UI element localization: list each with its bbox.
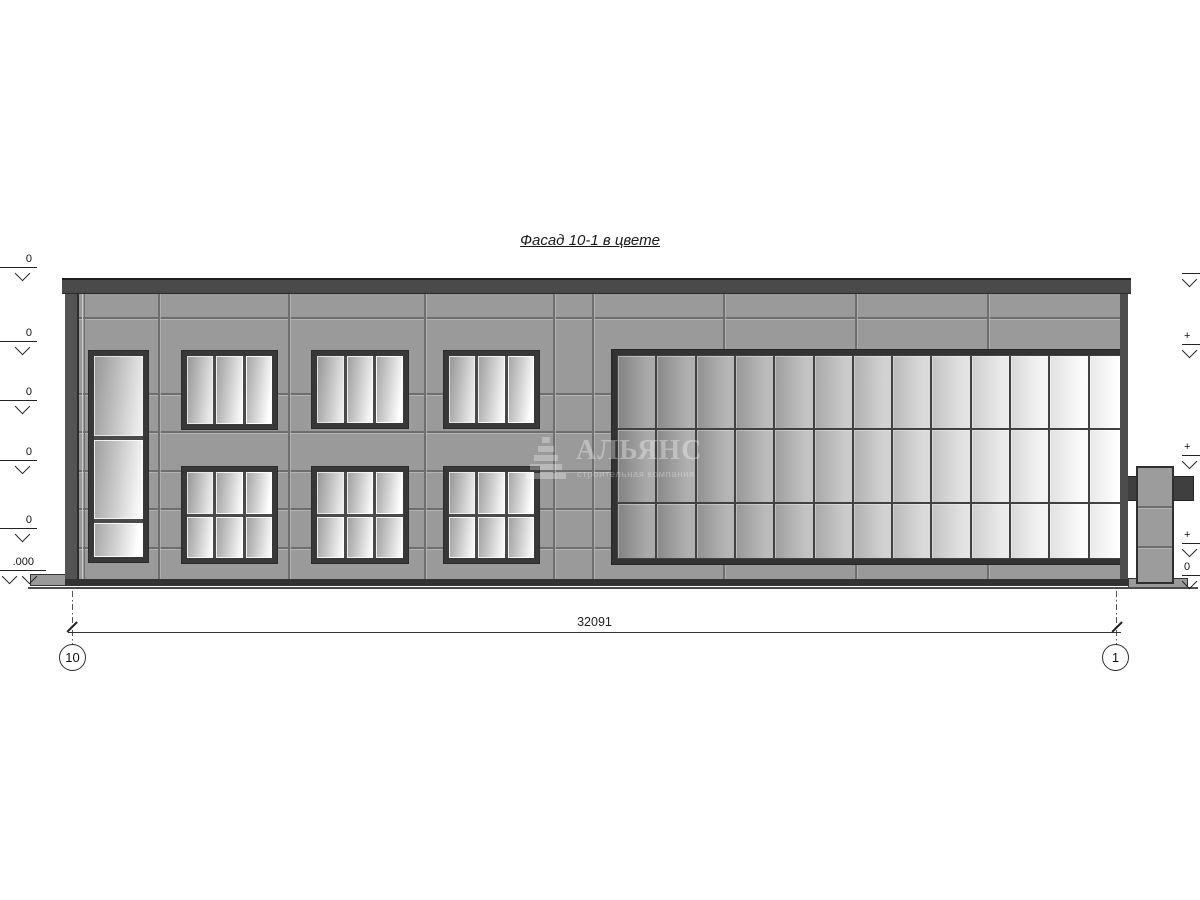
drawing-sheet: Фасад 10-1 в цвете [0, 0, 1200, 900]
glass-pane [508, 472, 534, 514]
glass-pane [187, 517, 213, 559]
grid-axis-circle-1: 1 [1102, 644, 1129, 671]
facade-left-joint [82, 290, 83, 586]
elevation-marker [1182, 259, 1200, 287]
glass-pane [376, 356, 403, 423]
curtain-wall-pane [814, 429, 853, 503]
curtain-wall-pane [696, 429, 735, 503]
curtain-wall-pane [931, 355, 970, 429]
grid-axis-circle-10: 10 [59, 644, 86, 671]
curtain-wall-pane [656, 429, 695, 503]
grid-axis-label: 1 [1112, 650, 1119, 665]
curtain-wall-pane [1049, 503, 1088, 559]
glass-pane [478, 472, 504, 514]
elevation-marker-label: + [1184, 330, 1190, 343]
elevation-marker: 0 [1182, 561, 1200, 589]
curtain-wall-pane [735, 355, 774, 429]
glass-pane [94, 356, 143, 436]
curtain-wall-pane [1010, 355, 1049, 429]
chimney [1136, 466, 1174, 584]
facade-right-edge [1120, 290, 1128, 586]
curtain-wall-pane [774, 355, 813, 429]
glass-pane [376, 472, 403, 514]
curtain-wall-pane [1010, 503, 1049, 559]
glass-pane [508, 517, 534, 559]
elevation-marker: + [1182, 441, 1200, 469]
window-lower-2 [312, 467, 408, 563]
curtain-wall-pane [853, 429, 892, 503]
curtain-wall-pane [735, 503, 774, 559]
glass-pane [246, 356, 272, 424]
dimension-line [68, 632, 1121, 633]
glass-pane [347, 356, 374, 423]
parapet-cap [62, 278, 1131, 293]
curtain-wall-pane [774, 503, 813, 559]
glass-pane [216, 517, 242, 559]
glass-pane [376, 517, 403, 559]
curtain-wall-pane [971, 503, 1010, 559]
facade-left-edge [65, 290, 79, 586]
curtain-wall-pane [774, 429, 813, 503]
curtain-wall-pane [853, 503, 892, 559]
elevation-marker-label: 0 [26, 327, 32, 340]
window-lower-1 [182, 467, 277, 563]
curtain-wall-pane [617, 355, 656, 429]
curtain-wall [612, 350, 1128, 564]
window-tall [89, 351, 148, 562]
elevation-marker-label: 0 [26, 446, 32, 459]
panel-joint-horizontal [79, 317, 1120, 319]
chimney-joint [1138, 546, 1172, 548]
elevation-marker-label: 0 [26, 253, 32, 266]
elevation-marker: 0 [0, 327, 37, 355]
curtain-wall-pane [1049, 429, 1088, 503]
elevation-marker-label: .000 [13, 556, 34, 569]
elevation-marker-label: 0 [26, 514, 32, 527]
window-upper-2 [312, 351, 408, 428]
glass-pane [246, 517, 272, 559]
curtain-wall-pane [892, 503, 931, 559]
elevation-marker: 0 [0, 514, 37, 542]
curtain-wall-pane [814, 355, 853, 429]
curtain-wall-pane [1010, 429, 1049, 503]
elevation-marker: 0 [0, 386, 37, 414]
curtain-wall-pane [696, 503, 735, 559]
elevation-marker-label: 0 [26, 386, 32, 399]
curtain-wall-pane [892, 355, 931, 429]
panel-joint-vertical [158, 290, 160, 586]
window-upper-3 [444, 351, 539, 428]
building-base [65, 579, 1128, 586]
glass-pane [449, 472, 475, 514]
drawing-title: Фасад 10-1 в цвете [440, 232, 740, 249]
curtain-wall-grid [617, 355, 1128, 559]
curtain-wall-pane [1049, 355, 1088, 429]
glass-pane [317, 472, 344, 514]
curtain-wall-pane [617, 429, 656, 503]
panel-joint-vertical [424, 290, 426, 586]
elevation-marker: 0 [0, 446, 37, 474]
curtain-wall-pane [931, 429, 970, 503]
glass-pane [478, 356, 504, 423]
glass-pane [478, 517, 504, 559]
glass-pane [347, 517, 374, 559]
curtain-wall-pane [892, 429, 931, 503]
glass-pane [508, 356, 534, 423]
elevation-marker-label: + [1184, 529, 1190, 542]
glass-pane [187, 472, 213, 514]
curtain-wall-pane [971, 429, 1010, 503]
curtain-wall-pane [656, 503, 695, 559]
ground-line [28, 587, 1198, 589]
glass-pane [94, 440, 143, 520]
elevation-marker-label: + [1184, 441, 1190, 454]
curtain-wall-pane [735, 429, 774, 503]
curtain-wall-pane [696, 355, 735, 429]
elevation-marker: .000 [0, 556, 46, 584]
chimney-bracket-right [1173, 476, 1194, 501]
glass-pane [347, 472, 374, 514]
elevation-marker: 0 [0, 253, 37, 281]
curtain-wall-pane [853, 355, 892, 429]
glass-pane [449, 356, 475, 423]
elevation-marker: + [1182, 529, 1200, 557]
elevation-marker-label: 0 [1184, 561, 1190, 574]
building-facade [65, 290, 1128, 586]
grid-axis-label: 10 [65, 650, 79, 665]
window-lower-3 [444, 467, 539, 563]
curtain-wall-pane [814, 503, 853, 559]
glass-pane [317, 517, 344, 559]
curtain-wall-pane [617, 503, 656, 559]
glass-pane [317, 356, 344, 423]
dimension-label: 32091 [72, 615, 1117, 629]
glass-pane [187, 356, 213, 424]
curtain-wall-pane [931, 503, 970, 559]
elevation-marker: + [1182, 330, 1200, 358]
panel-joint-vertical [592, 290, 594, 586]
window-upper-1 [182, 351, 277, 429]
glass-pane [216, 472, 242, 514]
panel-joint-vertical [288, 290, 290, 586]
curtain-wall-pane [656, 355, 695, 429]
curtain-wall-pane [971, 355, 1010, 429]
chimney-joint [1138, 506, 1172, 508]
glass-pane [94, 523, 143, 557]
glass-pane [246, 472, 272, 514]
glass-pane [216, 356, 242, 424]
panel-joint-vertical [553, 290, 555, 586]
window-glass [94, 356, 143, 557]
glass-pane [449, 517, 475, 559]
